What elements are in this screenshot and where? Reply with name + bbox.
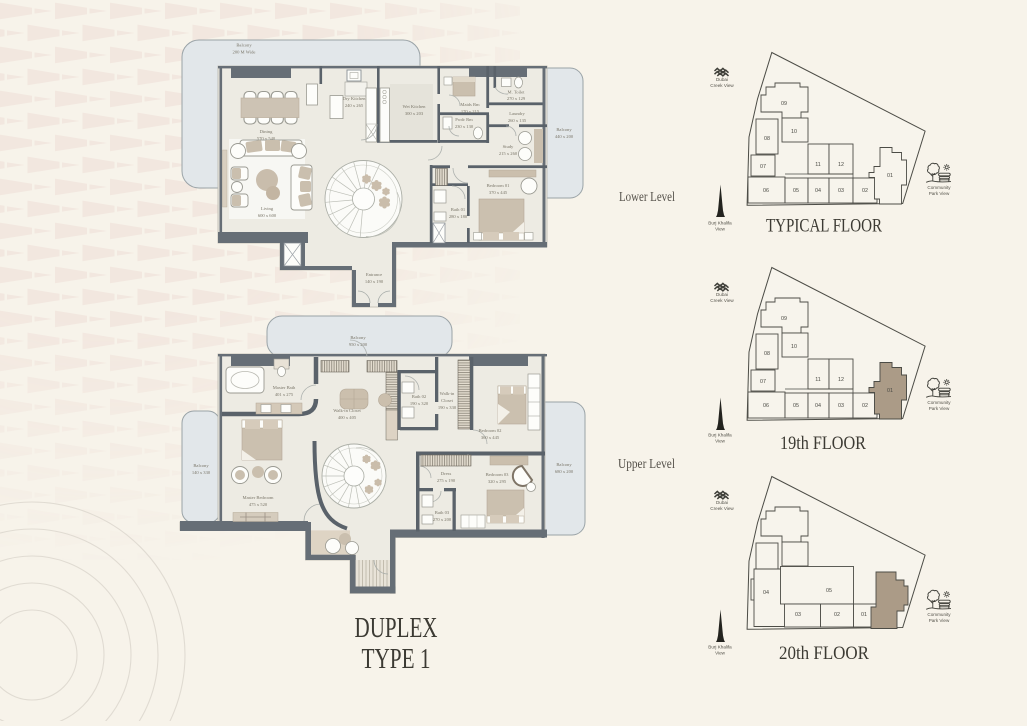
svg-text:Bedroom 01: Bedroom 01 bbox=[487, 183, 511, 188]
svg-text:View: View bbox=[715, 439, 726, 444]
svg-text:Creek View: Creek View bbox=[710, 83, 734, 88]
svg-text:Maids Rm: Maids Rm bbox=[460, 102, 480, 107]
svg-text:275 x 190: 275 x 190 bbox=[437, 478, 456, 483]
svg-text:Park View: Park View bbox=[929, 618, 950, 623]
svg-text:View: View bbox=[715, 227, 726, 232]
svg-text:Dining: Dining bbox=[260, 129, 273, 134]
svg-text:200 M Wide: 200 M Wide bbox=[233, 50, 256, 55]
svg-text:12: 12 bbox=[838, 162, 844, 168]
svg-text:Walk-in Closet: Walk-in Closet bbox=[333, 408, 361, 413]
svg-text:Community: Community bbox=[927, 612, 951, 617]
svg-text:140 x 190: 140 x 190 bbox=[365, 279, 384, 284]
svg-text:Dress: Dress bbox=[441, 471, 452, 476]
svg-text:Creek View: Creek View bbox=[710, 506, 734, 511]
svg-text:Closet: Closet bbox=[441, 398, 453, 403]
svg-text:Wet Kitchen: Wet Kitchen bbox=[403, 104, 427, 109]
svg-text:Living: Living bbox=[261, 206, 274, 211]
svg-text:Park View: Park View bbox=[929, 191, 950, 196]
svg-text:Balcony: Balcony bbox=[236, 43, 252, 48]
svg-text:Bath 02: Bath 02 bbox=[412, 394, 427, 399]
svg-text:Creek View: Creek View bbox=[710, 298, 734, 303]
svg-text:370 x 445: 370 x 445 bbox=[489, 190, 508, 195]
svg-text:M. Toilet: M. Toilet bbox=[508, 90, 526, 95]
svg-text:440 x 200: 440 x 200 bbox=[555, 134, 574, 139]
svg-text:Dubai: Dubai bbox=[716, 77, 728, 82]
svg-text:Burj Khalifa: Burj Khalifa bbox=[708, 433, 732, 438]
svg-text:Laundry: Laundry bbox=[509, 111, 525, 116]
svg-text:03: 03 bbox=[838, 188, 844, 194]
svg-text:Balcony: Balcony bbox=[193, 463, 209, 468]
svg-text:Community: Community bbox=[927, 400, 951, 405]
svg-text:01: 01 bbox=[887, 388, 893, 394]
svg-text:260 x 135: 260 x 135 bbox=[508, 118, 527, 123]
svg-text:Upper Level: Upper Level bbox=[618, 457, 675, 472]
svg-text:680 x 200: 680 x 200 bbox=[555, 469, 574, 474]
svg-text:01: 01 bbox=[861, 612, 867, 618]
svg-text:Master Bedroom: Master Bedroom bbox=[242, 495, 273, 500]
svg-text:Master Bath: Master Bath bbox=[273, 385, 296, 390]
svg-text:950 x 200: 950 x 200 bbox=[349, 342, 368, 347]
svg-text:Dry Kitchen: Dry Kitchen bbox=[343, 96, 367, 101]
svg-text:Community: Community bbox=[927, 185, 951, 190]
svg-text:10: 10 bbox=[791, 129, 797, 135]
svg-text:03: 03 bbox=[795, 612, 801, 618]
svg-text:02: 02 bbox=[862, 188, 868, 194]
svg-text:05: 05 bbox=[793, 188, 799, 194]
svg-text:DUPLEX: DUPLEX bbox=[355, 613, 438, 644]
svg-text:04: 04 bbox=[763, 590, 769, 596]
svg-text:Park View: Park View bbox=[929, 406, 950, 411]
svg-text:Bath 03: Bath 03 bbox=[435, 510, 450, 515]
svg-text:Lower Level: Lower Level bbox=[619, 190, 675, 205]
svg-text:240 x 265: 240 x 265 bbox=[345, 103, 364, 108]
svg-text:230 x 130: 230 x 130 bbox=[455, 124, 474, 129]
svg-text:140 x 330: 140 x 330 bbox=[192, 470, 211, 475]
svg-text:360 x 445: 360 x 445 bbox=[481, 435, 500, 440]
svg-text:Walk-in: Walk-in bbox=[440, 391, 455, 396]
svg-text:Entrance: Entrance bbox=[366, 272, 382, 277]
svg-text:TYPICAL FLOOR: TYPICAL FLOOR bbox=[766, 216, 882, 237]
svg-text:02: 02 bbox=[834, 612, 840, 618]
svg-text:280 x 180: 280 x 180 bbox=[449, 214, 468, 219]
svg-text:190 x 330: 190 x 330 bbox=[438, 405, 457, 410]
svg-text:Pwdr Rm: Pwdr Rm bbox=[455, 117, 473, 122]
svg-text:401 x 275: 401 x 275 bbox=[275, 392, 294, 397]
svg-text:320 x 295: 320 x 295 bbox=[488, 479, 507, 484]
svg-text:View: View bbox=[715, 651, 726, 656]
svg-text:300 x 203: 300 x 203 bbox=[405, 111, 424, 116]
svg-text:215 x 260: 215 x 260 bbox=[499, 151, 518, 156]
svg-text:Balcony: Balcony bbox=[556, 462, 572, 467]
svg-text:Balcony: Balcony bbox=[350, 335, 366, 340]
svg-text:600 x 600: 600 x 600 bbox=[258, 213, 277, 218]
svg-text:Dubai: Dubai bbox=[716, 500, 728, 505]
svg-text:190 x 320: 190 x 320 bbox=[410, 401, 429, 406]
svg-text:270 x 200: 270 x 200 bbox=[433, 517, 452, 522]
svg-text:19th FLOOR: 19th FLOOR bbox=[780, 433, 866, 454]
svg-text:20th FLOOR: 20th FLOOR bbox=[779, 643, 869, 664]
svg-text:Bath 01: Bath 01 bbox=[451, 207, 466, 212]
svg-text:400 x 405: 400 x 405 bbox=[338, 415, 357, 420]
svg-text:Burj Khalifa: Burj Khalifa bbox=[708, 221, 732, 226]
svg-text:TYPE 1: TYPE 1 bbox=[362, 644, 431, 675]
svg-text:09: 09 bbox=[781, 101, 787, 107]
svg-text:Bedroom 02: Bedroom 02 bbox=[479, 428, 503, 433]
svg-text:07: 07 bbox=[760, 164, 766, 170]
svg-text:270 x 129: 270 x 129 bbox=[507, 96, 526, 101]
svg-text:08: 08 bbox=[764, 136, 770, 142]
svg-text:Study: Study bbox=[503, 144, 514, 149]
svg-text:04: 04 bbox=[815, 188, 821, 194]
svg-text:Balcony: Balcony bbox=[556, 127, 572, 132]
svg-text:01: 01 bbox=[887, 173, 893, 179]
svg-text:11: 11 bbox=[815, 162, 821, 168]
svg-text:Bedroom 03: Bedroom 03 bbox=[486, 472, 510, 477]
svg-text:06: 06 bbox=[763, 188, 769, 194]
svg-text:170 x 215: 170 x 215 bbox=[461, 109, 480, 114]
svg-text:05: 05 bbox=[826, 588, 832, 594]
svg-text:Burj Khalifa: Burj Khalifa bbox=[708, 645, 732, 650]
svg-text:475 x 520: 475 x 520 bbox=[249, 502, 268, 507]
svg-text:Dubai: Dubai bbox=[716, 292, 728, 297]
